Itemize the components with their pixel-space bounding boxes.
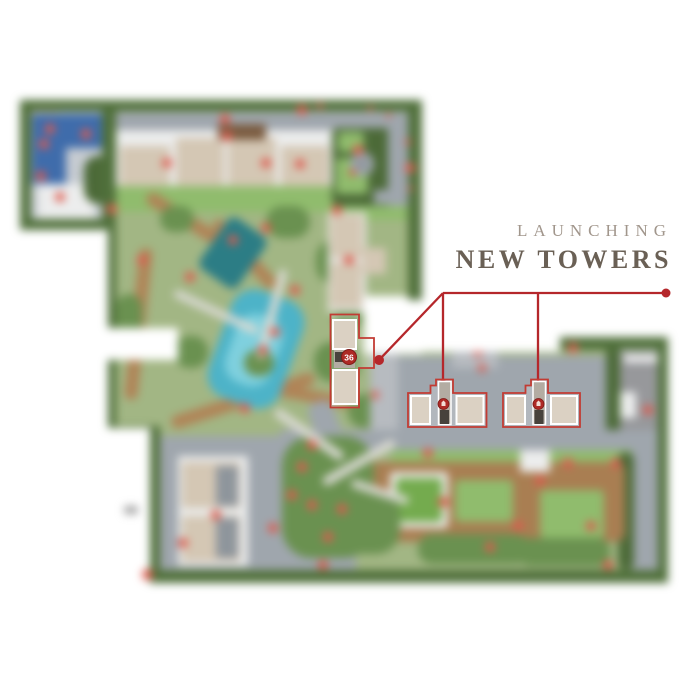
amenity-marker — [270, 327, 280, 337]
amenity-marker — [287, 490, 297, 500]
amenity-marker — [478, 364, 486, 372]
amenity-marker — [349, 169, 356, 176]
map-shape-treeMid — [160, 206, 194, 232]
amenity-marker — [318, 560, 328, 570]
amenity-marker — [371, 391, 379, 399]
amenity-marker — [107, 204, 117, 214]
amenity-marker — [611, 458, 621, 468]
amenity-marker — [55, 192, 65, 202]
amenity-marker — [337, 504, 347, 514]
amenity-marker — [185, 272, 195, 282]
amenity-marker — [332, 205, 342, 215]
amenity-marker — [405, 139, 411, 145]
map-shape-hedge — [658, 337, 674, 583]
map-shape-white2 — [520, 450, 550, 472]
amenity-marker — [307, 440, 317, 450]
map-shape-hedge — [20, 100, 424, 111]
amenity-marker — [423, 448, 433, 458]
amenity-marker — [240, 403, 250, 413]
amenity-marker — [261, 223, 271, 233]
amenity-marker — [258, 345, 268, 355]
amenity-marker — [162, 158, 172, 168]
amenity-marker — [586, 521, 596, 531]
amenity-marker — [290, 285, 300, 295]
amenity-marker — [323, 532, 333, 542]
blurred-object — [124, 506, 138, 514]
amenity-marker — [228, 235, 238, 245]
map-shape-hedge — [104, 426, 152, 438]
map-shape-beige — [363, 248, 386, 274]
map-shape-gray3 — [216, 466, 238, 506]
amenity-marker — [344, 255, 354, 265]
amenity-marker — [513, 521, 523, 531]
map-shape-hedge — [20, 219, 112, 231]
amenity-marker — [568, 343, 578, 353]
map-shape-hedge — [104, 220, 116, 432]
amenity-marker — [485, 542, 495, 552]
amenity-marker — [405, 163, 415, 173]
amenity-marker — [408, 186, 413, 191]
map-shape-hedge — [20, 100, 31, 232]
amenity-marker — [317, 103, 323, 109]
amenity-marker — [268, 523, 278, 533]
map-shape-treeMid — [266, 206, 310, 238]
map-shape-lawnBright — [455, 480, 513, 522]
map-shape-beige — [330, 214, 363, 258]
amenity-marker — [297, 462, 307, 472]
amenity-marker — [220, 114, 230, 124]
amenity-marker — [368, 106, 373, 111]
map-shape-hedge — [148, 570, 676, 583]
amenity-marker — [603, 560, 613, 570]
map-shape-treeMid — [518, 538, 610, 566]
amenity-marker — [297, 105, 307, 115]
map-shape-white — [364, 296, 422, 354]
amenity-marker — [295, 159, 305, 169]
amenity-marker — [39, 139, 49, 149]
amenity-marker — [45, 124, 55, 134]
amenity-marker — [137, 255, 147, 265]
amenity-marker — [473, 347, 483, 357]
amenity-marker — [353, 145, 363, 155]
masterplan-site — [20, 100, 675, 583]
amenity-marker — [261, 158, 271, 168]
amenity-marker — [307, 500, 317, 510]
amenity-marker — [563, 458, 573, 468]
amenity-marker — [81, 129, 91, 139]
map-shape-lawnBright — [540, 490, 604, 538]
amenity-marker — [386, 113, 391, 118]
amenity-marker — [211, 510, 221, 520]
map-shape-treeMid — [174, 336, 208, 368]
amenity-marker — [535, 476, 545, 486]
map-shape-gray3 — [216, 518, 238, 558]
launching-label: LAUNCHING — [517, 221, 672, 241]
map-shape-treeMid — [314, 342, 360, 382]
map-shape-hedge — [148, 426, 160, 578]
amenity-marker — [222, 131, 232, 141]
amenity-marker — [178, 538, 188, 548]
amenity-marker — [36, 171, 46, 181]
new-towers-title: NEW TOWERS — [456, 245, 672, 275]
map-shape-gray3 — [356, 158, 368, 170]
site-plan-image: 36 LAUNCHIN — [0, 0, 700, 700]
amenity-marker — [438, 497, 448, 507]
map-shape-white — [104, 328, 178, 360]
map-marker — [142, 569, 153, 580]
masterplan-photo — [0, 0, 700, 700]
map-shape-white2 — [620, 392, 636, 418]
map-shape-treeMid — [418, 534, 530, 564]
map-shape-treeMid — [312, 490, 400, 554]
map-shape-hedge — [408, 100, 422, 300]
map-shape-beige — [330, 262, 362, 308]
amenity-marker — [643, 405, 653, 415]
